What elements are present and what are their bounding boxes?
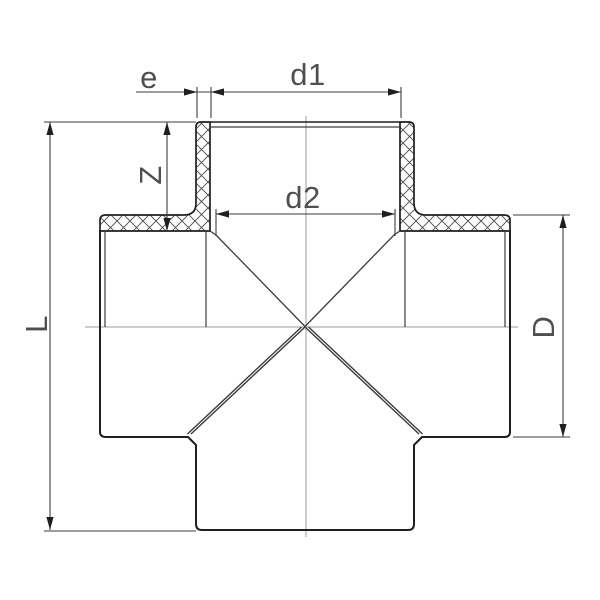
arrowhead-left [211, 88, 224, 95]
arrowhead-up [163, 122, 170, 135]
arrowhead-right-d1 [388, 88, 401, 95]
label-e: e [140, 60, 158, 95]
bore-intersection-diagonal-left [210, 231, 305, 327]
arrowhead-up [46, 122, 53, 135]
interior-section-lines [105, 231, 505, 327]
label-d1: d1 [290, 57, 325, 92]
label-Z: Z [133, 165, 168, 184]
arrowhead-right [382, 210, 395, 217]
fitting-outline [100, 231, 510, 530]
arrowhead-right [184, 88, 197, 95]
technical-drawing-page: L Z e d1 d2 [0, 0, 600, 600]
dimension-e-d1: e d1 [136, 57, 401, 118]
dimension-D: D [513, 215, 570, 437]
arrowhead-down [559, 424, 566, 437]
top-socket-mouth [210, 122, 400, 127]
bore-intersection-diagonal-right [305, 231, 400, 327]
label-L: L [19, 315, 54, 333]
cross-fitting-drawing-canvas: L Z e d1 d2 [0, 0, 600, 600]
label-D: D [526, 316, 561, 339]
hatched-wall-right [400, 122, 510, 231]
arrowhead-left [216, 210, 229, 217]
arrowhead-down [46, 517, 53, 530]
chamfer-double-line-left [188, 327, 306, 434]
arrowhead-up [559, 215, 566, 228]
chamfer-double-line-right [305, 327, 423, 434]
exterior-chamfer-edges [188, 327, 423, 434]
label-d2: d2 [285, 180, 320, 215]
